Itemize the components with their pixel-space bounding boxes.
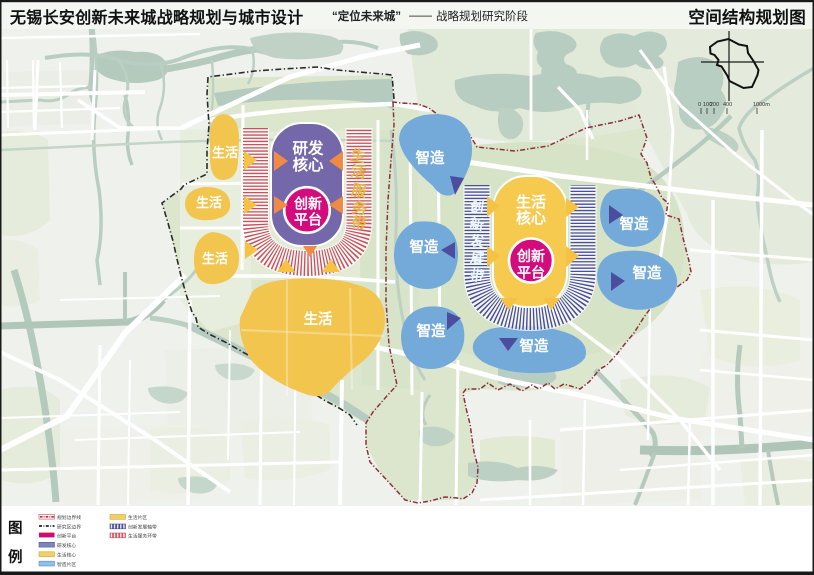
svg-text:智造: 智造: [520, 337, 549, 355]
svg-text:创新: 创新: [293, 196, 322, 212]
svg-text:“定位未来城”: “定位未来城”: [332, 9, 401, 23]
svg-text:平台: 平台: [294, 212, 322, 228]
svg-text:400: 400: [723, 102, 732, 108]
svg-text:图: 图: [8, 520, 23, 537]
svg-text:无锡长安创新未来城战略规划与城市设计: 无锡长安创新未来城战略规划与城市设计: [9, 8, 303, 27]
svg-text:平台: 平台: [517, 265, 545, 281]
svg-text:例: 例: [8, 548, 23, 566]
svg-text:空间结构规划图: 空间结构规划图: [688, 7, 806, 27]
svg-text:智造: 智造: [410, 238, 439, 256]
svg-text:研发核心: 研发核心: [57, 542, 76, 549]
svg-text:智造: 智造: [633, 264, 662, 282]
svg-text:生活: 生活: [212, 145, 238, 160]
svg-text:生活: 生活: [196, 195, 222, 210]
svg-text:新: 新: [469, 215, 485, 233]
svg-text:展: 展: [469, 249, 485, 267]
svg-text:研发: 研发: [292, 139, 324, 158]
svg-text:智造: 智造: [416, 149, 445, 167]
svg-text:战略规划研究阶段: 战略规划研究阶段: [436, 9, 528, 23]
svg-text:带: 带: [350, 214, 368, 233]
svg-text:规划边界线: 规划边界线: [57, 514, 81, 521]
svg-text:1000m: 1000m: [753, 102, 770, 108]
svg-text:核心: 核心: [516, 209, 546, 227]
svg-text:200: 200: [710, 102, 719, 108]
svg-text:核心: 核心: [292, 155, 324, 174]
svg-text:创新: 创新: [516, 248, 545, 264]
svg-text:生活片区: 生活片区: [128, 514, 147, 521]
svg-text:生活: 生活: [202, 251, 228, 266]
svg-text:智造: 智造: [417, 322, 446, 340]
svg-text:0: 0: [698, 102, 701, 108]
svg-text:生活核心: 生活核心: [57, 552, 76, 559]
svg-text:——: ——: [409, 10, 433, 22]
svg-text:智造片区: 智造片区: [57, 561, 76, 568]
svg-text:活: 活: [349, 162, 367, 182]
svg-text:带: 带: [469, 267, 485, 285]
svg-text:研究区边界: 研究区边界: [57, 524, 81, 531]
svg-text:生活: 生活: [304, 310, 333, 328]
svg-text:生活服务环带: 生活服务环带: [128, 533, 157, 540]
svg-text:创新发展轴带: 创新发展轴带: [128, 524, 157, 531]
svg-text:创: 创: [468, 197, 485, 215]
svg-text:创新平台: 创新平台: [57, 533, 76, 540]
svg-text:智造: 智造: [620, 215, 649, 233]
svg-text:生活: 生活: [516, 193, 546, 211]
